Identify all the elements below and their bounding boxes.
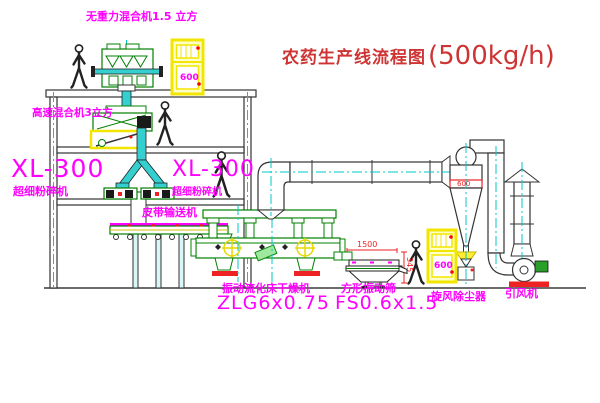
dimension-cyclone-diameter: 600 [457,181,470,188]
cad-drawing-canvas: 农药生产线流程图 (500kg/h) 无重力混合机1.5 立方 高速混合机3立方… [0,0,600,403]
label-cyclone: 旋风除尘器 [431,291,486,302]
worker-figure [158,102,173,145]
title-capacity: (500kg/h) [428,44,555,69]
fan-motor [535,261,548,272]
dryer-base [212,271,238,276]
roof-discharge-pipe [122,91,131,108]
label-pulverizer-right-model: XL-300 [172,159,255,181]
indicator-light [196,46,200,50]
label-sieve-model: FS0.6x1.5 [335,294,438,313]
title-text: 农药生产线流程图 [282,48,426,68]
support-post [133,233,138,288]
dimension-sieve-length: 1500 [357,241,377,249]
label-fan: 引风机 [505,288,538,299]
label-dryer-model: ZLG6x0.75 [217,294,330,313]
control-cabinet-ground [428,230,456,282]
label-highspeed-mixer: 高速混合机3立方 [32,108,113,119]
mixer-shaft [94,69,160,74]
drawing-title: 农药生产线流程图 (500kg/h) [282,44,555,69]
gravity-mixer [91,44,163,108]
control-cabinet-top [172,40,203,94]
dimension-sieve-height: 345 [405,257,413,272]
worker-figure [72,45,87,88]
support-post [156,233,161,288]
cabinet-ground-mark: 600 [434,262,453,271]
pulverizer-left [104,183,137,199]
cabinet-top-mark: 600 [180,74,199,83]
indicator-light [449,235,453,239]
label-pulverizer-left-name: 超细粉碎机 [13,186,68,197]
mixer-motor [137,116,151,128]
support-post [179,233,184,288]
pulverizer-right [141,183,174,199]
label-pulverizer-left-model: XL-300 [11,156,104,181]
label-pulverizer-right-name: 超细粉碎机 [172,188,222,198]
cyclone-outlet-bend [470,140,504,153]
label-gravity-mixer: 无重力混合机1.5 立方 [86,11,197,22]
dryer-base [294,271,320,276]
label-belt-conveyor: 皮带输送机 [142,207,197,218]
induced-draft-fan [509,259,549,288]
